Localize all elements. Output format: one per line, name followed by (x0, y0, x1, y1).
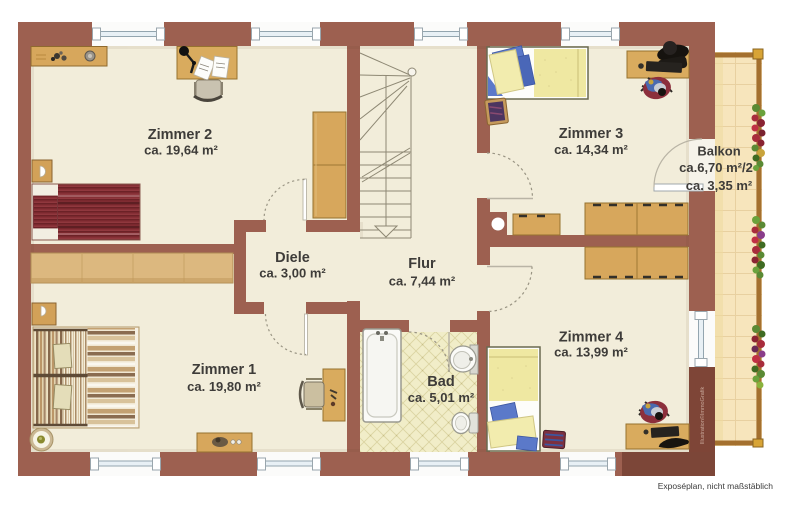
svg-text:Flur: Flur (408, 256, 436, 272)
svg-text:Illustration©ImmoGrafik: Illustration©ImmoGrafik (699, 386, 706, 444)
svg-text:Zimmer 2: Zimmer 2 (148, 127, 212, 143)
svg-text:Zimmer 1: Zimmer 1 (192, 362, 256, 378)
svg-text:Zimmer 4: Zimmer 4 (559, 330, 623, 346)
svg-text:Exposéplan, nicht maßstäblich: Exposéplan, nicht maßstäblich (658, 481, 774, 491)
svg-text:Balkon: Balkon (697, 144, 740, 159)
svg-text:ca. 19,64 m²: ca. 19,64 m² (144, 143, 218, 158)
svg-text:ca. 5,01 m²: ca. 5,01 m² (408, 390, 475, 405)
svg-text:ca. 19,80 m²: ca. 19,80 m² (187, 379, 261, 394)
svg-text:ca. 14,34 m²: ca. 14,34 m² (554, 142, 628, 157)
svg-text:Bad: Bad (427, 374, 454, 390)
svg-text:ca. 7,44 m²: ca. 7,44 m² (389, 274, 456, 289)
svg-text:Zimmer 3: Zimmer 3 (559, 126, 623, 142)
svg-text:ca. 3,35 m²: ca. 3,35 m² (686, 178, 753, 193)
svg-text:ca.6,70 m²/2: ca.6,70 m²/2 (679, 160, 753, 175)
svg-text:Diele: Diele (275, 250, 310, 266)
svg-text:ca. 3,00 m²: ca. 3,00 m² (259, 266, 326, 281)
svg-text:ca. 13,99 m²: ca. 13,99 m² (554, 345, 628, 360)
